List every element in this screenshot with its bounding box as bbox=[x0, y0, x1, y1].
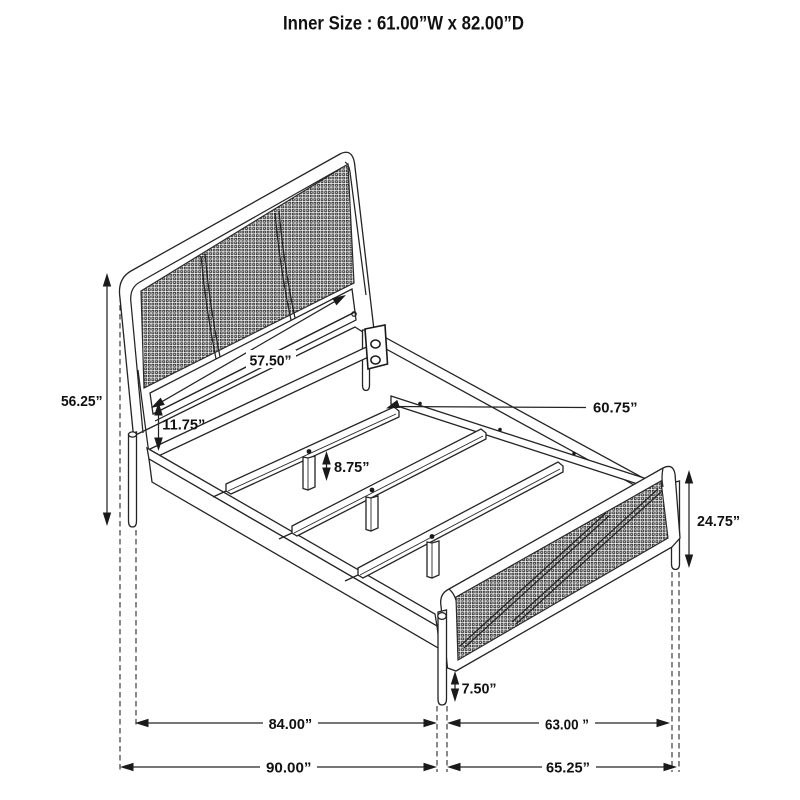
svg-text:24.75”: 24.75” bbox=[697, 513, 740, 530]
svg-text:8.75”: 8.75” bbox=[334, 459, 370, 476]
svg-text:65.25”: 65.25” bbox=[546, 759, 590, 776]
svg-text:84.00”: 84.00” bbox=[269, 716, 313, 733]
svg-text:56.25”: 56.25” bbox=[61, 393, 103, 410]
svg-text:57.50”: 57.50” bbox=[250, 353, 292, 370]
svg-text:11.75”: 11.75” bbox=[162, 416, 205, 433]
svg-text:60.75”: 60.75” bbox=[593, 400, 638, 417]
svg-text:Inner Size : 61.00”W x 82.00”D: Inner Size : 61.00”W x 82.00”D bbox=[283, 14, 524, 35]
svg-text:7.50”: 7.50” bbox=[462, 681, 497, 698]
svg-text:63.00 ”: 63.00 ” bbox=[545, 716, 589, 733]
svg-text:90.00”: 90.00” bbox=[266, 759, 312, 776]
